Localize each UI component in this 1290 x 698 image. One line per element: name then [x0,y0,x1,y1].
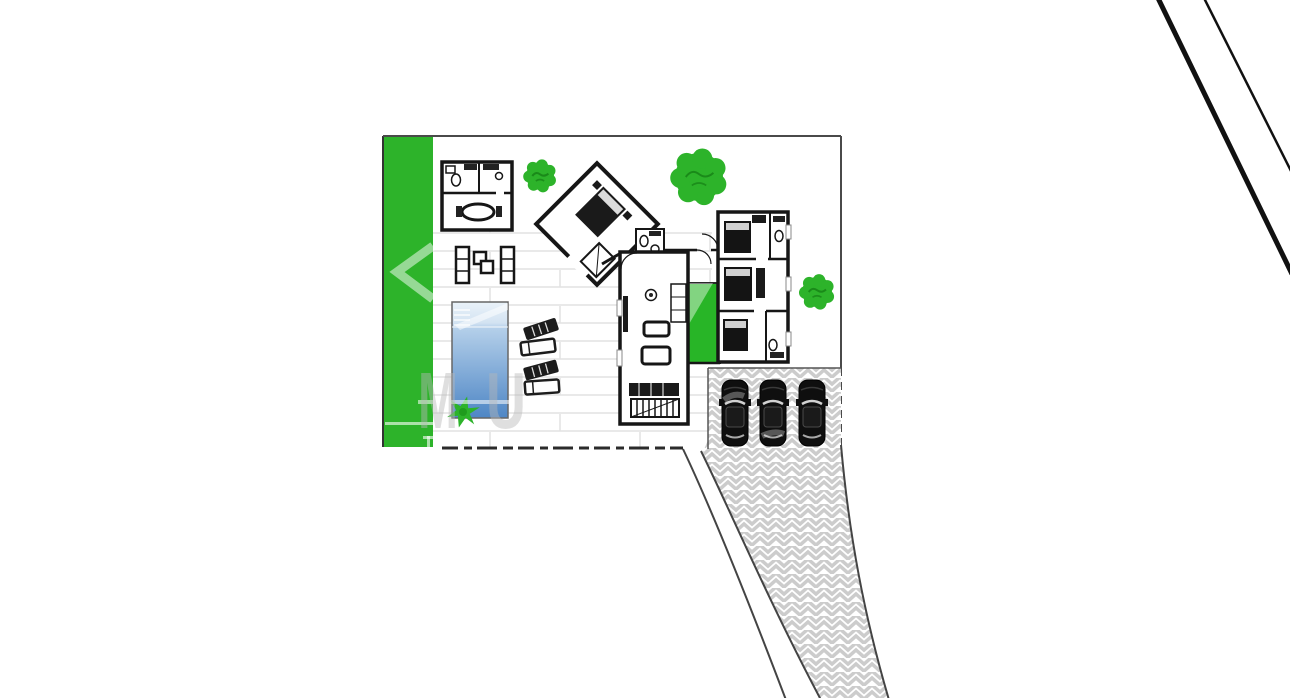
tree-icon [523,159,556,192]
window-icon [617,300,622,316]
chair-icon [456,206,462,217]
parked-cars [719,380,828,446]
floor-plan-canvas: MU [0,0,1290,698]
car-icon [719,380,751,446]
basin-icon [496,173,503,180]
wardrobe-icon [756,268,765,298]
side-table-icon [481,261,493,273]
site-plan-page: MU [0,0,1290,698]
toilet-icon [640,236,648,247]
window-icon [786,277,791,291]
cabinet-icon [629,383,679,396]
sink-icon [446,166,455,173]
living-wing [617,252,688,424]
lawn-strip [383,136,433,447]
road-edge-line [1203,0,1290,173]
bedroom-wing [718,212,791,362]
sun-lounger-icon [520,338,555,355]
window-icon [617,350,622,366]
road-edge-line [1157,0,1290,274]
sun-lounger-icon [525,379,560,394]
toilet-icon [452,174,461,186]
courtyard [685,283,720,363]
toilet-icon [769,340,777,351]
dining-table-icon [462,204,494,220]
sink-icon [770,352,784,358]
kitchen-counter-icon [671,284,686,322]
coffee-table-icon [642,347,670,364]
tree-icon [670,148,726,205]
chair-icon [496,206,502,217]
toilet-icon [775,231,783,242]
window-icon [786,332,791,346]
counter-icon [464,164,477,170]
sink-icon [773,216,785,222]
window-icon [786,225,791,239]
guest-house [442,162,512,230]
counter-icon [483,164,499,170]
pool [452,302,508,418]
stairs-icon [631,399,679,417]
coffee-table-icon [644,322,669,336]
road-lines [1157,0,1290,274]
car-icon [796,380,828,446]
sofa-icon [623,296,628,332]
tree-icon [799,274,834,309]
car-icon [757,380,789,446]
